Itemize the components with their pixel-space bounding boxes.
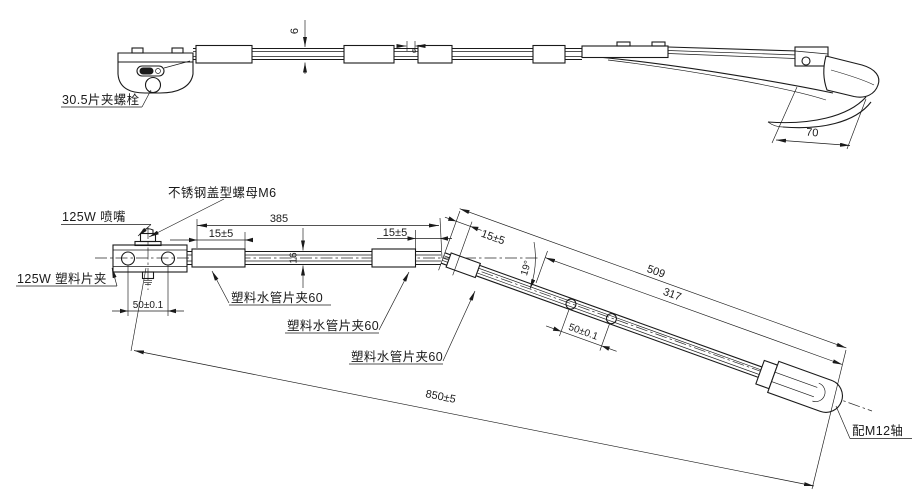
side-view: 509 317 15±5 50±0.1 385 [16,185,912,489]
end-segment [582,46,668,58]
dim-15-second-text: 15±5 [383,227,407,239]
plastic-clip-label: 125W 塑料片夹 [17,271,107,286]
dim-15-first-text: 15±5 [209,228,233,240]
plastic-clip-callout: 125W 塑料片夹 [16,268,117,286]
dim-clip-gap-text: 6 [412,46,416,55]
dim-arm-thickness: 6 [289,20,305,74]
dim-850-text: 850±5 [424,388,456,406]
dim-arm-thickness-text: 6 [289,28,301,34]
clip-segment [533,46,565,64]
hose-clip-callout-1: 塑料水管片夹60 [212,271,331,305]
dim-50-head-text: 50±0.1 [133,300,164,311]
hose-clip-3 [446,253,480,278]
dim-15-first: 15±5 [170,228,253,250]
clip-segment [196,46,252,64]
hook-holder [795,47,828,66]
end-cap [824,56,879,97]
clamp-bolt-label: 30.5片夹螺栓 [62,92,140,107]
hook-end-top [768,47,879,128]
hose-clip-label-3: 塑料水管片夹60 [351,349,443,364]
nozzle-callout: 125W 喷嘴 [61,210,151,236]
engineering-drawing-canvas: 6 6 70 30.5片夹螺栓 [0,0,922,500]
arm-bar-side [187,249,441,267]
shaft-label: 配M12轴 [852,423,903,438]
wiper-head-side [113,229,187,285]
dim-50-arm-text: 50±0.1 [567,322,600,343]
hose-clip-label-2: 塑料水管片夹60 [287,318,379,333]
wiper-arm-drawing: 6 6 70 30.5片夹螺栓 [0,0,922,500]
clamp-bolt-callout: 30.5片夹螺栓 [61,90,151,107]
angled-arm: 509 317 15±5 50±0.1 [420,193,863,434]
clip-segment [418,46,452,64]
dim-509-text: 509 [645,263,666,281]
arm-bar-top [193,42,833,100]
hose-clip-1 [192,249,245,267]
pivot-hole-2 [162,252,175,265]
hose-clip-2 [372,249,416,267]
dim-16-text: 16 [289,252,300,264]
cap-nut-label: 不锈钢盖型螺母M6 [168,185,276,200]
dim-385-text: 385 [270,213,288,225]
hose-clip-label-1: 塑料水管片夹60 [231,290,323,305]
shaft-callout: 配M12轴 [836,406,912,439]
pivot-hole-1 [122,252,135,265]
dim-hook-width-text: 70 [806,127,819,140]
dim-15-third-text: 15±5 [479,228,506,248]
dim-19-text: 19° [519,259,534,277]
clamp-bolt-hole [146,78,161,93]
clip-segment [344,46,394,64]
top-view: 6 6 70 30.5片夹螺栓 [61,20,879,149]
end-cap-side [768,361,847,417]
nozzle-label: 125W 喷嘴 [62,210,126,224]
wiper-head-top [118,48,193,93]
